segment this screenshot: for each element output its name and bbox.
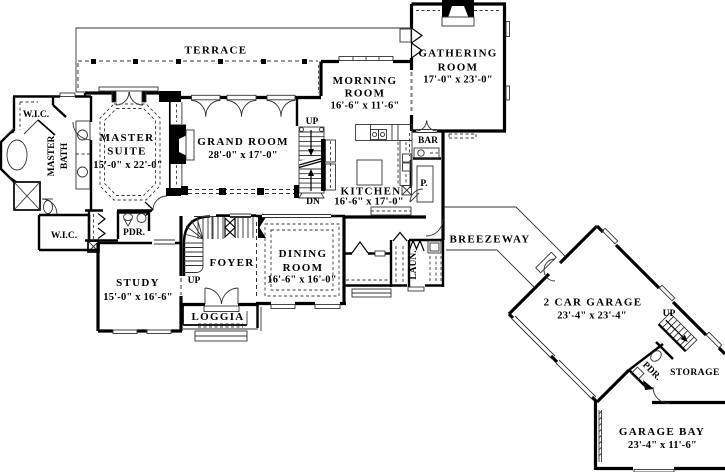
svg-text:16'-6" x 16'-0": 16'-6" x 16'-0" [267, 275, 337, 286]
svg-text:UP: UP [188, 276, 201, 286]
svg-text:ROOM: ROOM [345, 88, 386, 100]
svg-text:STUDY: STUDY [116, 277, 160, 289]
svg-text:FOYER: FOYER [210, 257, 255, 269]
svg-text:16'-6" x 17'-0": 16'-6" x 17'-0" [334, 197, 404, 208]
svg-text:TERRACE: TERRACE [185, 45, 248, 57]
svg-text:BREEZEWAY: BREEZEWAY [450, 234, 531, 246]
svg-text:23'-4" x 23'-4": 23'-4" x 23'-4" [557, 311, 627, 322]
svg-text:UP: UP [306, 117, 319, 127]
svg-text:28'-0" x 17'-0": 28'-0" x 17'-0" [208, 150, 278, 161]
svg-text:DINING: DINING [279, 248, 328, 260]
svg-text:UP: UP [663, 309, 676, 319]
svg-text:DN: DN [306, 197, 320, 207]
svg-text:LAUN.: LAUN. [409, 250, 419, 279]
svg-text:BATH: BATH [60, 142, 70, 169]
svg-text:SUITE: SUITE [107, 146, 147, 158]
svg-text:17'-0" x 23'-0": 17'-0" x 23'-0" [423, 75, 493, 86]
svg-text:2 CAR GARAGE: 2 CAR GARAGE [544, 297, 643, 309]
svg-text:STORAGE: STORAGE [670, 368, 720, 378]
svg-text:MASTER: MASTER [47, 136, 57, 177]
svg-text:15'-0" x 16'-6": 15'-0" x 16'-6" [103, 292, 173, 303]
svg-text:15'-0" x 22'-0": 15'-0" x 22'-0" [93, 160, 163, 171]
svg-text:W.I.C.: W.I.C. [51, 231, 77, 241]
svg-text:BAR: BAR [418, 136, 438, 146]
svg-text:GRAND ROOM: GRAND ROOM [197, 136, 289, 148]
svg-text:GARAGE BAY: GARAGE BAY [619, 426, 705, 438]
svg-text:GATHERING: GATHERING [418, 48, 497, 60]
svg-text:ROOM: ROOM [283, 262, 324, 274]
svg-text:MASTER: MASTER [100, 132, 155, 144]
svg-text:ROOM: ROOM [438, 62, 479, 74]
svg-text:W.I.C.: W.I.C. [23, 110, 49, 120]
svg-text:LOGGIA: LOGGIA [191, 311, 244, 323]
svg-text:P.: P. [420, 179, 427, 189]
svg-text:PDR.: PDR. [123, 228, 145, 238]
svg-text:MORNING: MORNING [333, 75, 398, 87]
svg-text:16'-6" x 11'-6": 16'-6" x 11'-6" [331, 101, 400, 112]
svg-text:23'-4" x 11'-6": 23'-4" x 11'-6" [628, 440, 697, 451]
